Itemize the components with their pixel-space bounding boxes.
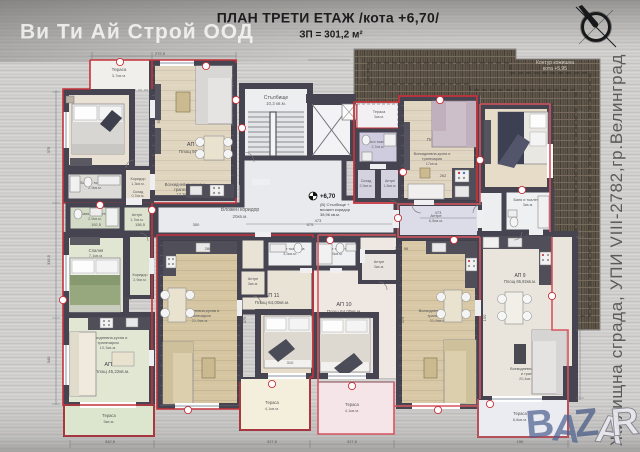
svg-text:340: 340 <box>46 356 51 363</box>
svg-text:375: 375 <box>46 146 51 153</box>
svg-text:317,5: 317,5 <box>347 439 358 444</box>
svg-text:Тераса: Тераса <box>112 67 127 72</box>
svg-text:2,9кв.м.: 2,9кв.м. <box>88 217 102 221</box>
svg-text:10,3кв.м.: 10,3кв.м. <box>100 345 117 350</box>
svg-text:и трап.: и трап. <box>521 372 533 376</box>
svg-text:473: 473 <box>435 210 442 215</box>
svg-text:Площ 65,92кв.м.: Площ 65,92кв.м. <box>504 279 536 284</box>
svg-text:Коридор: Коридор <box>131 177 146 181</box>
svg-text:10,3 кв.м.: 10,3 кв.м. <box>266 101 286 106</box>
svg-text:310: 310 <box>345 360 352 365</box>
svg-text:317,5: 317,5 <box>267 439 278 444</box>
svg-text:4,1кв.м.: 4,1кв.м. <box>265 406 279 411</box>
svg-text:1,8кв.м.: 1,8кв.м. <box>384 184 397 188</box>
svg-text:Площ 64,00кв.м.: Площ 64,00кв.м. <box>255 300 290 305</box>
svg-text:2,7кв.м.: 2,7кв.м. <box>372 145 385 149</box>
svg-text:3,5кв.м.: 3,5кв.м. <box>283 252 297 256</box>
svg-text:3кв.м.: 3кв.м. <box>374 115 384 119</box>
svg-text:17кв.м.: 17кв.м. <box>426 162 439 166</box>
svg-text:375: 375 <box>242 316 247 323</box>
svg-text:375: 375 <box>400 316 405 323</box>
svg-text:500: 500 <box>156 116 161 123</box>
svg-text:Тераса: Тераса <box>373 110 386 114</box>
svg-text:+6,70: +6,70 <box>320 194 336 200</box>
svg-text:Жилищна сграда, УПИ VIII-2782: Жилищна сграда, УПИ VIII-2782,гр.Велингр… <box>607 54 626 446</box>
svg-text:473: 473 <box>315 218 322 223</box>
svg-text:0,7кв.м.: 0,7кв.м. <box>132 194 145 198</box>
svg-text:310: 310 <box>582 296 587 303</box>
svg-text:Антре: Антре <box>385 179 395 183</box>
svg-text:342,5: 342,5 <box>105 439 116 444</box>
svg-text:3,7кв.м.: 3,7кв.м. <box>112 73 126 78</box>
svg-text:192,5: 192,5 <box>91 222 102 227</box>
svg-text:Склад: Склад <box>361 179 372 183</box>
svg-text:Тераса: Тераса <box>265 400 279 405</box>
svg-text:7,1кв.м.: 7,1кв.м. <box>89 253 103 258</box>
svg-text:350: 350 <box>193 222 200 227</box>
svg-text:2,9кв.м.: 2,9кв.м. <box>133 278 147 282</box>
svg-text:Тераса: Тераса <box>345 402 359 407</box>
svg-text:20кв.м.: 20кв.м. <box>233 214 248 219</box>
svg-text:3кв.м.: 3кв.м. <box>374 265 385 269</box>
svg-text:316,5: 316,5 <box>46 254 51 265</box>
svg-text:6,5кв.м.: 6,5кв.м. <box>429 218 443 223</box>
svg-text:262: 262 <box>440 173 447 178</box>
svg-text:Антре: Антре <box>248 277 259 281</box>
svg-text:5кв.м.: 5кв.м. <box>103 419 114 424</box>
svg-text:2,9кв.м.: 2,9кв.м. <box>360 184 373 188</box>
svg-text:Антре: Антре <box>374 260 385 264</box>
svg-text:Всекидневна,кухня и: Всекидневна,кухня и <box>414 152 451 156</box>
svg-text:21,9кв.м.: 21,9кв.м. <box>192 318 209 323</box>
svg-text:Коридор: Коридор <box>133 273 148 277</box>
svg-text:310: 310 <box>287 360 294 365</box>
svg-text:Ви Ти Ай Строй ООД: Ви Ти Ай Строй ООД <box>20 21 254 44</box>
svg-text:253: 253 <box>125 296 132 301</box>
svg-text:3кв.м.: 3кв.м. <box>523 203 534 207</box>
svg-text:375: 375 <box>582 166 587 173</box>
svg-text:158,5: 158,5 <box>135 222 146 227</box>
svg-text:286: 286 <box>395 246 402 251</box>
svg-text:Антре: Антре <box>132 213 143 217</box>
svg-text:675: 675 <box>307 222 314 227</box>
svg-text:Площ 45,22кв.м.: Площ 45,22кв.м. <box>95 369 130 374</box>
svg-text:150: 150 <box>482 314 487 321</box>
svg-text:АП 10: АП 10 <box>336 302 351 308</box>
svg-text:3кв.м.: 3кв.м. <box>248 282 259 286</box>
svg-text:272,5: 272,5 <box>155 51 166 56</box>
svg-text:Вложен коридор: Вложен коридор <box>221 207 260 213</box>
svg-text:Тераса: Тераса <box>102 413 116 418</box>
svg-text:4,1кв.м.: 4,1кв.м. <box>345 408 359 413</box>
svg-text:150: 150 <box>517 439 524 444</box>
svg-text:96: 96 <box>404 246 409 251</box>
svg-text:38,96 кв.м.: 38,96 кв.м. <box>320 212 340 217</box>
svg-text:1,3кв.м.: 1,3кв.м. <box>131 182 145 186</box>
svg-text:ЗП = 301,2 м²: ЗП = 301,2 м² <box>299 30 363 41</box>
svg-text:172: 172 <box>377 96 384 101</box>
svg-text:286: 286 <box>205 246 212 251</box>
svg-text:2,9кв.м.: 2,9кв.м. <box>88 186 102 190</box>
svg-text:кота +5,95: кота +5,95 <box>543 66 567 72</box>
svg-text:162: 162 <box>333 234 340 239</box>
svg-text:трапезария: трапезария <box>422 157 442 161</box>
svg-text:R: R <box>609 400 640 445</box>
